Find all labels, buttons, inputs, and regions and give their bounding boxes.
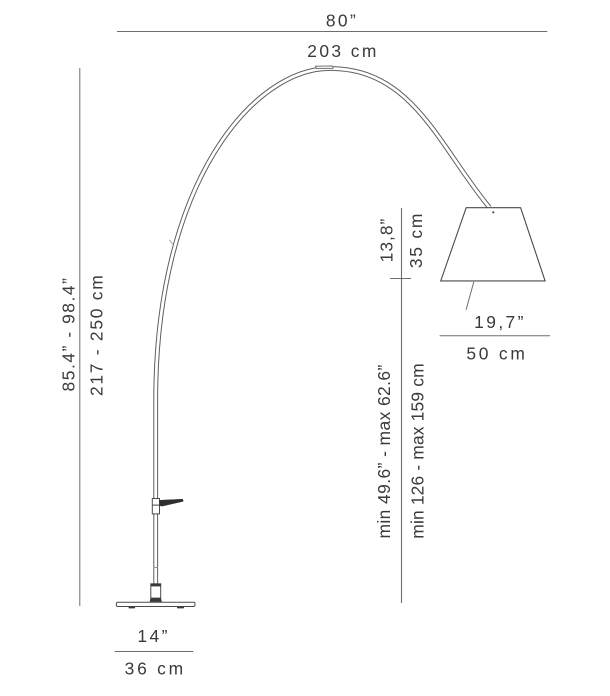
svg-text:80”: 80” [326,11,358,31]
svg-text:36 cm: 36 cm [125,659,186,679]
svg-text:19,7”: 19,7” [474,312,526,332]
svg-text:35 cm: 35 cm [406,212,426,268]
svg-text:203 cm: 203 cm [307,41,378,61]
svg-text:min 126 - max 159 cm: min 126 - max 159 cm [408,363,428,538]
svg-text:50 cm: 50 cm [466,344,527,364]
svg-text:13,8”: 13,8” [377,218,397,263]
svg-text:85.4” - 98.4”: 85.4” - 98.4” [59,276,79,391]
svg-text:min 49.6” - max 62.6”: min 49.6” - max 62.6” [374,364,394,538]
svg-text:217 - 250 cm: 217 - 250 cm [87,274,107,397]
svg-text:14”: 14” [137,626,169,646]
